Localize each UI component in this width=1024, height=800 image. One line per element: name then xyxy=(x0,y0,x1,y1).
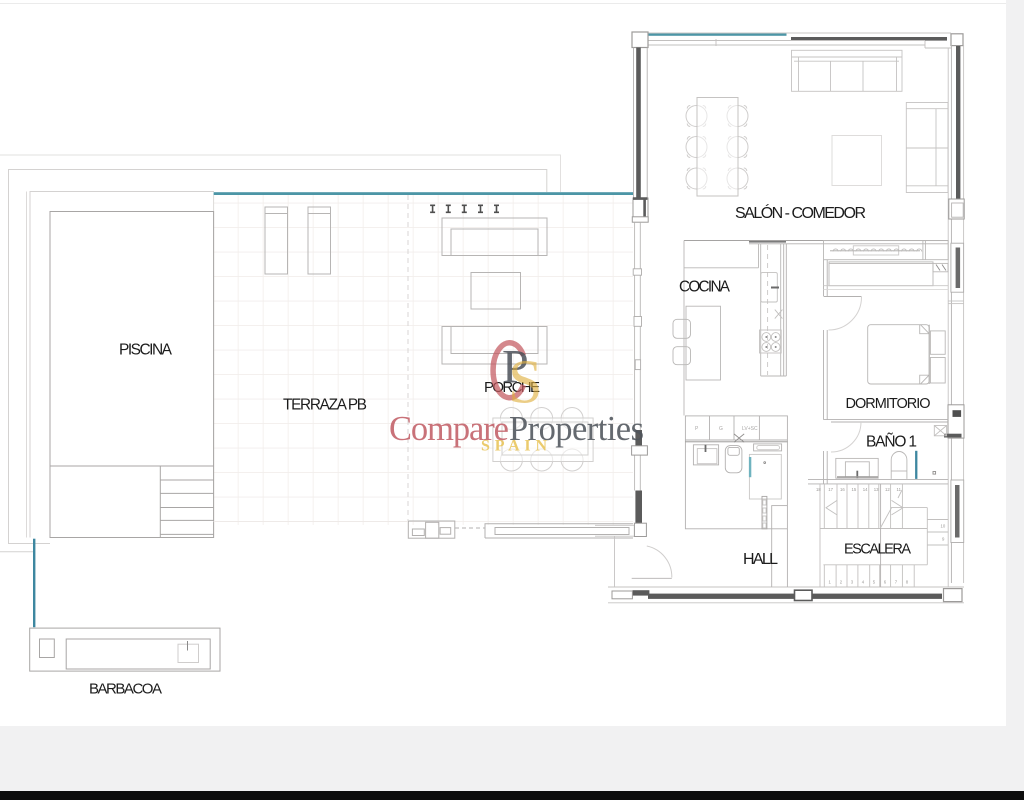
svg-text:DORMITORIO: DORMITORIO xyxy=(846,396,931,412)
svg-text:COCINA: COCINA xyxy=(679,279,731,296)
svg-text:HALL: HALL xyxy=(743,551,778,568)
svg-text:11: 11 xyxy=(897,487,902,492)
svg-text:BARBACOA: BARBACOA xyxy=(89,681,162,698)
svg-text:14: 14 xyxy=(863,487,868,492)
svg-text:18: 18 xyxy=(816,487,821,492)
svg-text:SPAIN: SPAIN xyxy=(481,438,554,455)
svg-text:ESCALERA: ESCALERA xyxy=(844,541,911,557)
svg-text:15: 15 xyxy=(852,487,857,492)
svg-text:G: G xyxy=(719,426,723,432)
svg-text:13: 13 xyxy=(874,487,879,492)
svg-text:S: S xyxy=(508,349,542,417)
svg-text:10: 10 xyxy=(941,524,946,529)
svg-text:16: 16 xyxy=(840,487,845,492)
svg-text:BAÑO 1: BAÑO 1 xyxy=(866,434,917,451)
svg-text:PISCINA: PISCINA xyxy=(119,342,173,359)
svg-text:17: 17 xyxy=(828,487,833,492)
svg-text:SALÓN - COMEDOR: SALÓN - COMEDOR xyxy=(735,203,866,222)
svg-text:LV+SC: LV+SC xyxy=(742,426,758,432)
svg-text:12: 12 xyxy=(885,487,890,492)
svg-text:TERRAZA PB: TERRAZA PB xyxy=(283,397,367,414)
